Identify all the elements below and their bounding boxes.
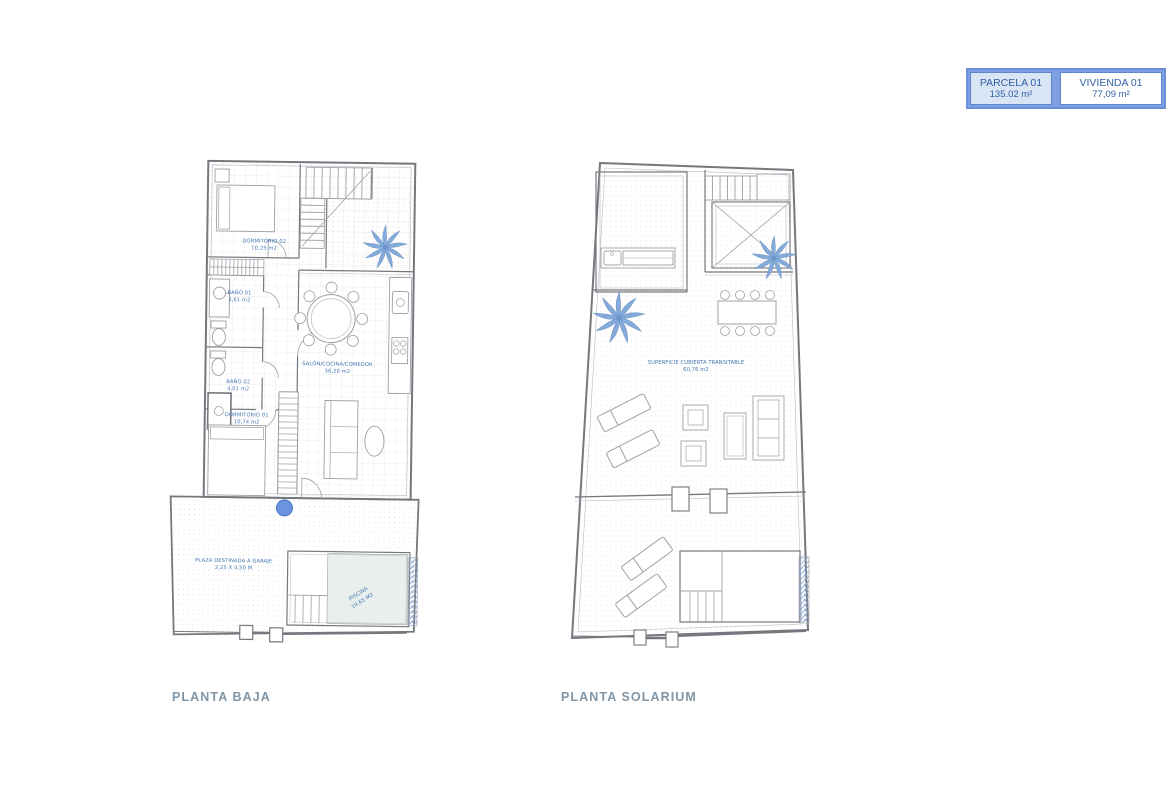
round-table-chairs [294,282,368,356]
planta-baja-title: PLANTA BAJA [172,690,271,704]
plans-drawing: DORMITORIO 02 10,25 m2 BAÑO 01 3,61 m2 B… [0,0,1170,785]
lower-stair-structure [680,551,800,622]
kitchen-counter [388,277,412,393]
plant-strip [408,558,418,626]
area-salon: 36,20 m2 [325,368,351,374]
label-bano-01: BAÑO 01 [227,289,251,296]
vivienda-label: VIVIENDA 01 [1079,77,1142,90]
planta-solarium-title: PLANTA SOLARIUM [561,690,697,704]
solarium-room [592,172,687,292]
label-salon: SALÓN/COCINA/COMEDOR [302,360,373,368]
plant-strip [799,557,809,623]
wardrobe [210,259,264,276]
staircase-lower [278,392,298,494]
label-dormitorio-02: DORMITORIO 02 [242,238,286,245]
parcela-cell: PARCELA 01 135.02 m² [970,72,1052,105]
bed-dormitorio-01 [208,425,266,496]
label-garaje: PLAZA DESTINADA A GARAJE [195,558,272,565]
area-bano-02: 4,01 m2 [227,386,249,392]
area-dormitorio-01: 10,74 m2 [234,419,260,425]
legend-box: PARCELA 01 135.02 m² VIVIENDA 01 77,09 m… [966,68,1166,109]
vivienda-cell: VIVIENDA 01 77,09 m² [1060,72,1162,105]
tree-dot [276,500,292,516]
label-superficie-cubierta: SUPERFICIE CUBIERTA TRANSITABLE [648,360,745,366]
area-garaje: 2,25 X 4,50 M [215,565,252,572]
parcela-area: 135.02 m² [990,89,1033,100]
pool [287,551,410,627]
area-superficie-cubierta: 60,76 m2 [683,367,709,373]
planta-baja-plan: DORMITORIO 02 10,25 m2 BAÑO 01 3,61 m2 B… [169,160,424,643]
planta-solarium-plan: SUPERFICIE CUBIERTA TRANSITABLE 60,76 m2 [572,163,809,647]
label-dormitorio-01: DORMITORIO 01 [225,412,269,419]
area-bano-01: 3,61 m2 [228,297,250,303]
outdoor-kitchen [601,248,675,268]
parcela-label: PARCELA 01 [980,77,1042,90]
label-bano-02: BAÑO 02 [226,378,250,385]
floor-plan-sheet: DORMITORIO 02 10,25 m2 BAÑO 01 3,61 m2 B… [0,0,1170,785]
vivienda-area: 77,09 m² [1092,89,1130,100]
area-dormitorio-02: 10,25 m2 [251,245,277,251]
